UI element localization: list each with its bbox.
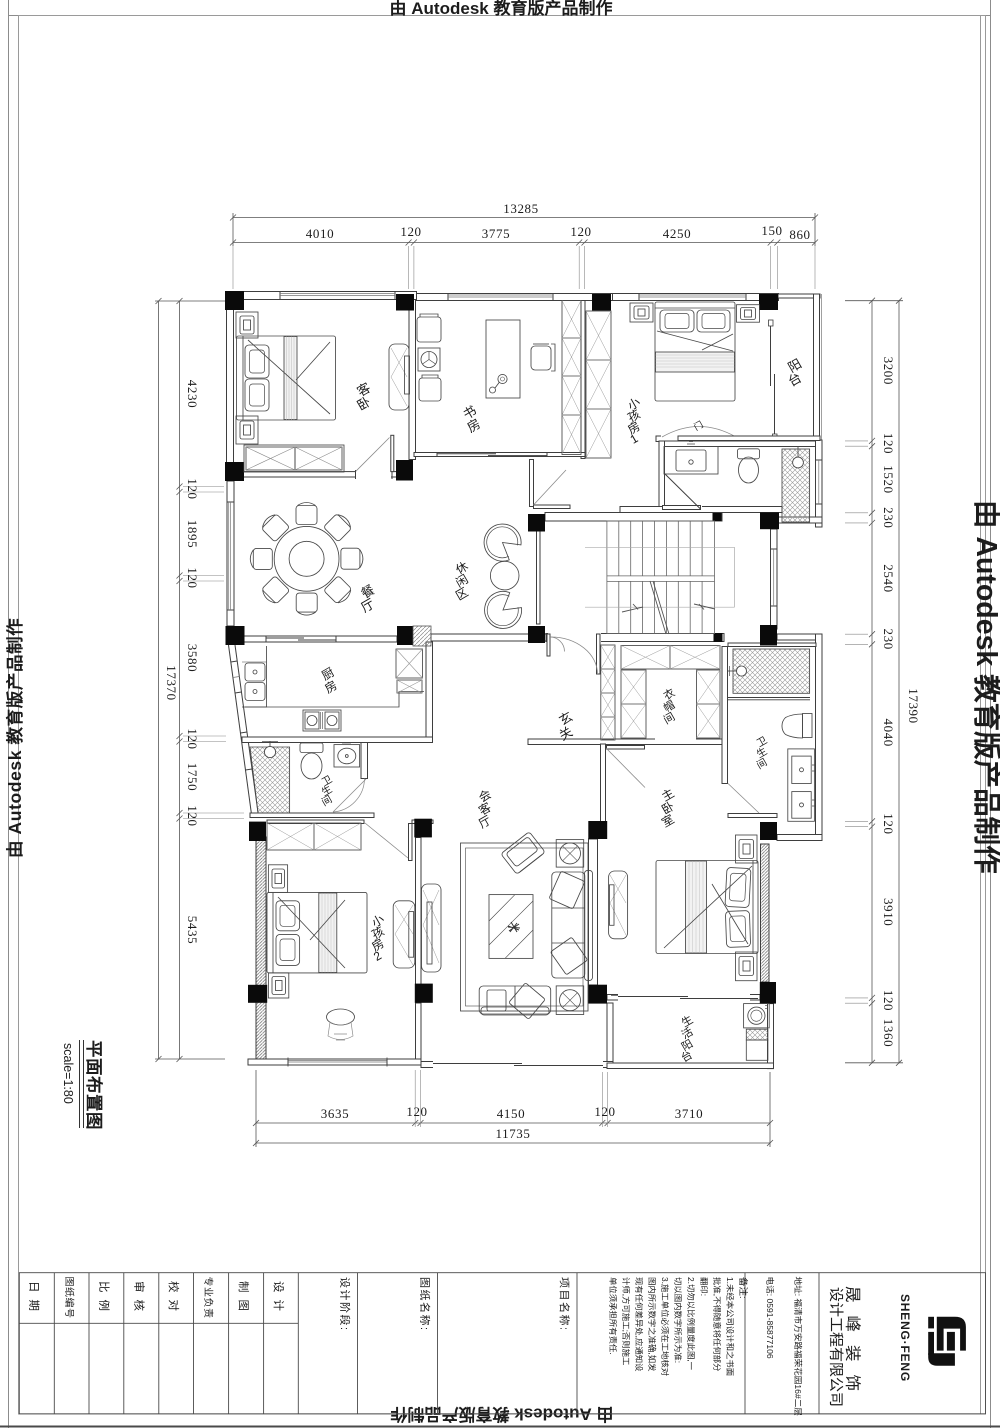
svg-text:专业负责: 专业负责 — [202, 1277, 217, 1319]
svg-text:审核: 审核 — [131, 1281, 147, 1318]
svg-text:4150: 4150 — [497, 1106, 525, 1121]
svg-text:3710: 3710 — [675, 1106, 703, 1121]
svg-text:120: 120 — [185, 478, 200, 499]
svg-text:设计工程有限公司: 设计工程有限公司 — [826, 1287, 847, 1407]
svg-text:翻印:: 翻印: — [698, 1277, 710, 1296]
svg-text:设计: 设计 — [271, 1281, 287, 1318]
svg-text:比例: 比例 — [96, 1281, 112, 1318]
svg-text:3635: 3635 — [321, 1106, 349, 1121]
svg-text:3775: 3775 — [482, 226, 510, 241]
svg-text:切以图内数字所示为准:: 切以图内数字所示为准: — [672, 1277, 684, 1363]
svg-text:120: 120 — [881, 433, 896, 454]
svg-text:2540: 2540 — [881, 564, 896, 592]
svg-text:日期: 日期 — [26, 1281, 42, 1318]
svg-text:图纸编号: 图纸编号 — [63, 1277, 78, 1319]
svg-text:860: 860 — [789, 227, 810, 242]
svg-text:SHENG·FENG: SHENG·FENG — [898, 1294, 912, 1382]
svg-text:3.施工单位必须在工地核对: 3.施工单位必须在工地核对 — [659, 1277, 671, 1377]
svg-text:项目名称:: 项目名称: — [557, 1277, 573, 1332]
svg-text:由 Autodesk 教育版产品制作: 由 Autodesk 教育版产品制作 — [968, 500, 1000, 874]
svg-text:1360: 1360 — [881, 1019, 896, 1047]
svg-text:13285: 13285 — [503, 201, 539, 216]
svg-text:5435: 5435 — [185, 916, 200, 944]
svg-text:批准,不得随意将任何部分: 批准,不得随意将任何部分 — [711, 1277, 723, 1372]
svg-text:120: 120 — [185, 805, 200, 826]
svg-text:17370: 17370 — [164, 665, 179, 701]
svg-text:120: 120 — [881, 990, 896, 1011]
svg-text:3910: 3910 — [881, 898, 896, 926]
svg-text:电话: 0591-85877106: 电话: 0591-85877106 — [764, 1277, 776, 1359]
svg-text:120: 120 — [400, 224, 421, 239]
svg-text:由 Autodesk 教育版产品制作: 由 Autodesk 教育版产品制作 — [391, 1404, 614, 1428]
svg-text:图内所示数字之准确,如发: 图内所示数字之准确,如发 — [646, 1277, 658, 1372]
svg-text:制图: 制图 — [236, 1281, 252, 1318]
svg-text:现有任何差异处,应通知设: 现有任何差异处,应通知设 — [633, 1277, 645, 1372]
svg-text:4250: 4250 — [663, 226, 691, 241]
svg-text:设计阶段:: 设计阶段: — [337, 1277, 353, 1332]
svg-text:17390: 17390 — [906, 688, 921, 724]
svg-text:1750: 1750 — [185, 763, 200, 791]
svg-text:120: 120 — [185, 728, 200, 749]
svg-text:230: 230 — [881, 629, 896, 650]
svg-text:scale=1:80: scale=1:80 — [61, 1043, 75, 1104]
svg-text:120: 120 — [881, 813, 896, 834]
svg-text:1.未经本公司设计和之书面: 1.未经本公司设计和之书面 — [724, 1277, 736, 1376]
svg-text:4010: 4010 — [306, 226, 334, 241]
svg-text:由 Autodesk 教育版产品制作: 由 Autodesk 教育版产品制作 — [390, 0, 613, 19]
svg-text:150: 150 — [761, 223, 782, 238]
svg-text:120: 120 — [185, 567, 200, 588]
svg-text:地址: 福清市万安路福荣花园16#二层: 地址: 福清市万安路福荣花园16#二层 — [792, 1277, 804, 1417]
svg-text:1895: 1895 — [185, 520, 200, 548]
svg-text:2.切勿以比例量度此图,一: 2.切勿以比例量度此图,一 — [685, 1277, 697, 1371]
svg-text:120: 120 — [570, 224, 591, 239]
svg-text:11735: 11735 — [495, 1126, 530, 1141]
svg-text:3200: 3200 — [881, 357, 896, 385]
svg-text:1520: 1520 — [881, 465, 896, 493]
svg-text:校对: 校对 — [166, 1281, 182, 1318]
svg-text:4230: 4230 — [185, 380, 200, 408]
svg-text:平面布置图: 平面布置图 — [82, 1040, 107, 1130]
svg-text:备注:: 备注: — [737, 1277, 751, 1299]
svg-text:图纸名称:: 图纸名称: — [417, 1277, 433, 1332]
svg-text:3580: 3580 — [185, 644, 200, 672]
svg-text:120: 120 — [406, 1104, 427, 1119]
svg-text:单位须承担所有责任.: 单位须承担所有责任. — [607, 1277, 619, 1355]
svg-text:计师,方可施工;否则施工: 计师,方可施工;否则施工 — [620, 1277, 632, 1365]
svg-text:120: 120 — [594, 1104, 615, 1119]
svg-text:230: 230 — [881, 507, 896, 528]
svg-text:4040: 4040 — [881, 718, 896, 746]
svg-text:由 Autodesk 教育版产品制作: 由 Autodesk 教育版产品制作 — [2, 618, 27, 858]
